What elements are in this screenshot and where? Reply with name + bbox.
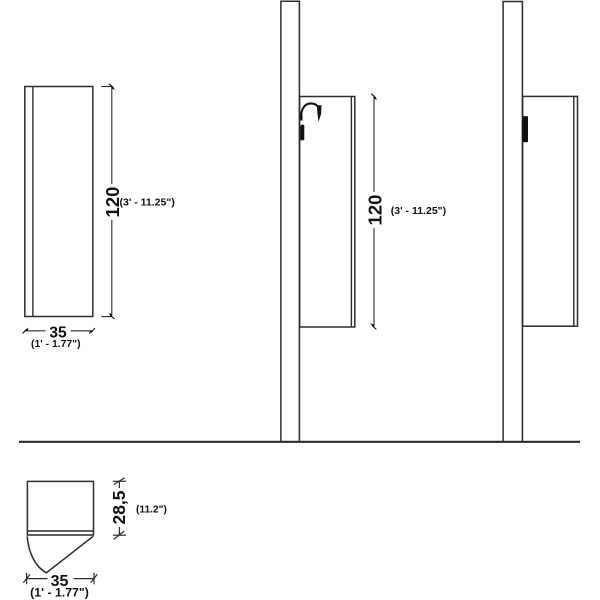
svg-text:(3' - 11.25"): (3' - 11.25") — [120, 197, 175, 209]
svg-text:28,5: 28,5 — [109, 490, 129, 524]
svg-text:120: 120 — [364, 195, 385, 226]
svg-text:(1' - 1.77"): (1' - 1.77") — [31, 339, 81, 350]
svg-text:(1' - 1.77"): (1' - 1.77") — [30, 586, 89, 600]
svg-text:(3' - 11.25"): (3' - 11.25") — [391, 205, 446, 217]
svg-text:(11.2"): (11.2") — [136, 505, 167, 516]
